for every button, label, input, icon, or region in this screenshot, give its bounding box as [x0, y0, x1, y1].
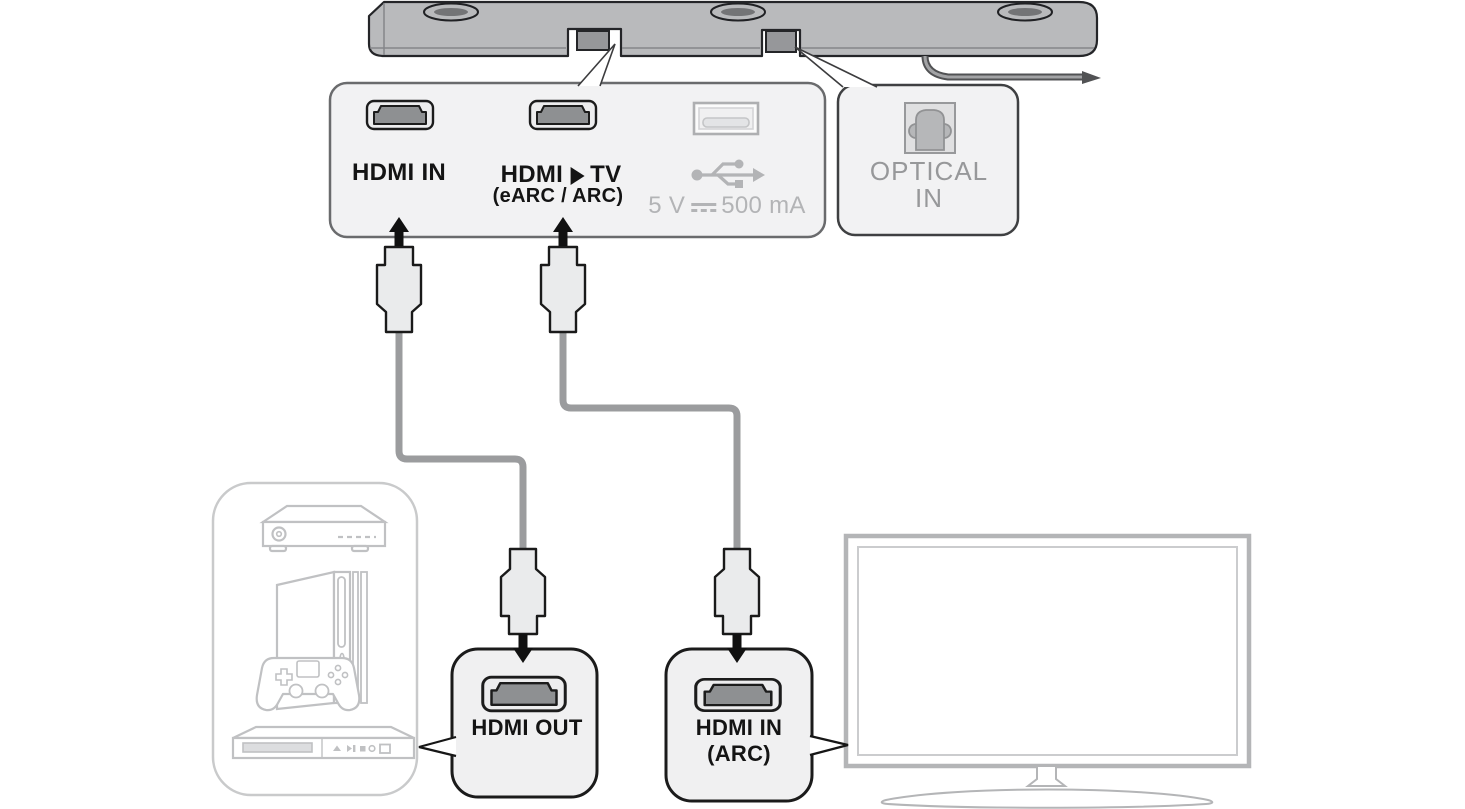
hdmi-in-port-label: HDMI IN — [352, 159, 446, 187]
hdmi-port-icon — [483, 677, 566, 711]
tv-stand-neck — [1028, 766, 1065, 786]
soundbar-connector-recess-right — [766, 31, 796, 52]
hdmi-plug-icon — [501, 549, 545, 634]
hdmi-port-icon — [530, 101, 596, 129]
hdmi-plug-icon — [541, 247, 585, 332]
earc-arc-sub-label-text: (eARC / ARC) — [493, 185, 624, 207]
optical-in-label-line1: OPTICAL — [870, 158, 988, 185]
bluray-player-icon — [233, 727, 414, 758]
hdmi-out-pointer — [419, 737, 456, 756]
usb-port-icon — [694, 103, 758, 134]
hdmi-in-arc-pointer — [810, 736, 848, 755]
soundbar-bottom-icon — [369, 2, 1097, 56]
optical-in-label: OPTICAL IN — [870, 158, 988, 212]
hdmi-port-icon — [367, 101, 433, 129]
dc-current-icon — [691, 202, 716, 215]
hdmi-plug-icon — [377, 247, 421, 332]
hdmi-in-port-label-text: HDMI IN — [352, 159, 446, 186]
soundbar-connection-diagram: HDMI IN HDMI TV (eARC / ARC) 5 V 500 mA … — [0, 0, 1465, 809]
hdmi-in-arc-label: HDMI IN (ARC) — [696, 715, 782, 767]
hdmi-cable-right — [563, 325, 737, 556]
optical-in-label-line2: IN — [870, 185, 988, 212]
hdmi-plug-icon — [715, 549, 759, 634]
set-top-box-icon — [263, 506, 385, 551]
earc-arc-sub-label: (eARC / ARC) — [493, 185, 624, 208]
usb-voltage-text: 5 V — [648, 192, 685, 220]
hdmi-out-label-text: HDMI OUT — [471, 715, 582, 740]
diagram-canvas — [0, 0, 1465, 809]
hdmi-port-icon — [696, 679, 780, 710]
right-triangle-icon — [570, 167, 584, 185]
usb-current-text: 500 mA — [721, 192, 806, 220]
optical-port-icon — [905, 103, 955, 153]
power-cable — [925, 56, 1101, 84]
tv-stand-base — [882, 790, 1213, 808]
tv-icon — [846, 536, 1249, 808]
hdmi-in-arc-label-line2: (ARC) — [696, 741, 782, 767]
usb-power-rating-label: 5 V 500 mA — [648, 192, 805, 220]
soundbar-connector-recess-left — [577, 31, 609, 50]
hdmi-out-label: HDMI OUT — [471, 715, 582, 741]
hdmi-in-arc-label-line1: HDMI IN — [696, 715, 782, 741]
